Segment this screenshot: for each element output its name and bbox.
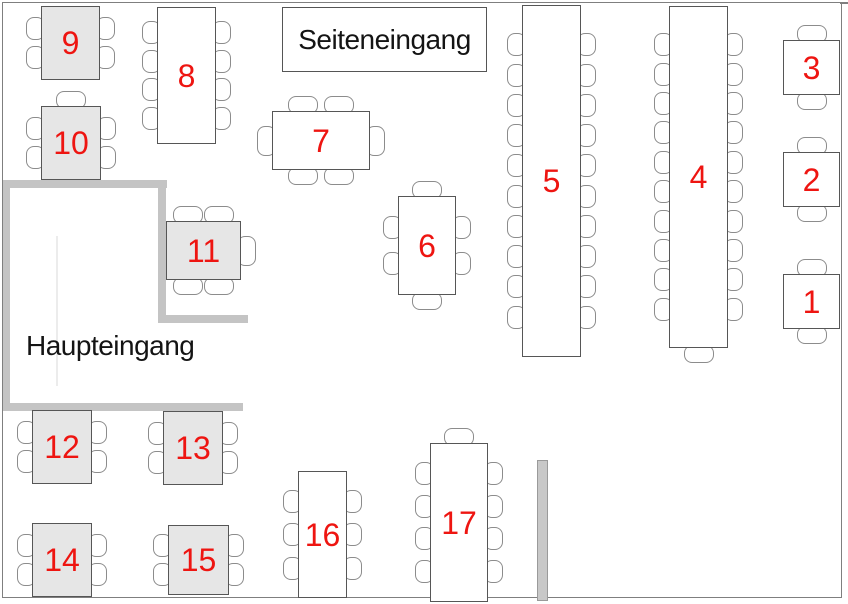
floorplan-canvas: Seiteneingang Haupteingang 1234567891011… [0, 0, 848, 604]
table-number: 6 [418, 230, 436, 262]
table-number: 14 [44, 544, 80, 576]
table-number: 10 [53, 127, 89, 159]
table-number: 12 [44, 431, 80, 463]
table-number: 2 [803, 164, 821, 196]
side-entrance-label: Seiteneingang [298, 24, 471, 56]
table-12: 12 [32, 410, 92, 484]
table-number: 9 [62, 27, 80, 59]
table-14: 14 [32, 523, 92, 597]
vestibule-wall-left [3, 180, 10, 410]
table-number: 8 [178, 60, 196, 92]
table-number: 17 [441, 507, 477, 539]
main-entrance-label: Haupteingang [26, 330, 194, 362]
table-7: 7 [272, 111, 370, 170]
table-8: 8 [157, 7, 216, 144]
table-number: 15 [181, 544, 217, 576]
table-number: 1 [803, 286, 821, 318]
table-3: 3 [783, 40, 840, 95]
door-swing-line [56, 236, 58, 386]
table-4: 4 [669, 6, 728, 348]
table-1: 1 [783, 274, 840, 329]
table-5: 5 [522, 5, 581, 357]
table-number: 16 [305, 519, 341, 551]
room-outline-top-extension [840, 2, 848, 4]
vestibule-wall-inner-horizontal [158, 315, 248, 323]
table-6: 6 [398, 196, 456, 295]
table-number: 11 [187, 235, 220, 267]
table-11: 11 [166, 221, 241, 280]
table-number: 7 [312, 125, 330, 157]
table-number: 4 [690, 161, 708, 193]
side-entrance-box: Seiteneingang [282, 7, 487, 72]
divider-screen [537, 460, 548, 601]
vestibule-wall-inner-vertical [158, 180, 166, 322]
table-number: 5 [543, 165, 561, 197]
table-number: 3 [803, 52, 821, 84]
table-13: 13 [163, 411, 223, 485]
table-10: 10 [41, 106, 101, 180]
vestibule-wall-top [3, 180, 167, 188]
table-number: 13 [175, 432, 211, 464]
table-15: 15 [168, 525, 229, 595]
table-9: 9 [41, 6, 100, 80]
table-17: 17 [430, 443, 488, 602]
table-2: 2 [783, 152, 840, 207]
table-16: 16 [298, 471, 347, 598]
